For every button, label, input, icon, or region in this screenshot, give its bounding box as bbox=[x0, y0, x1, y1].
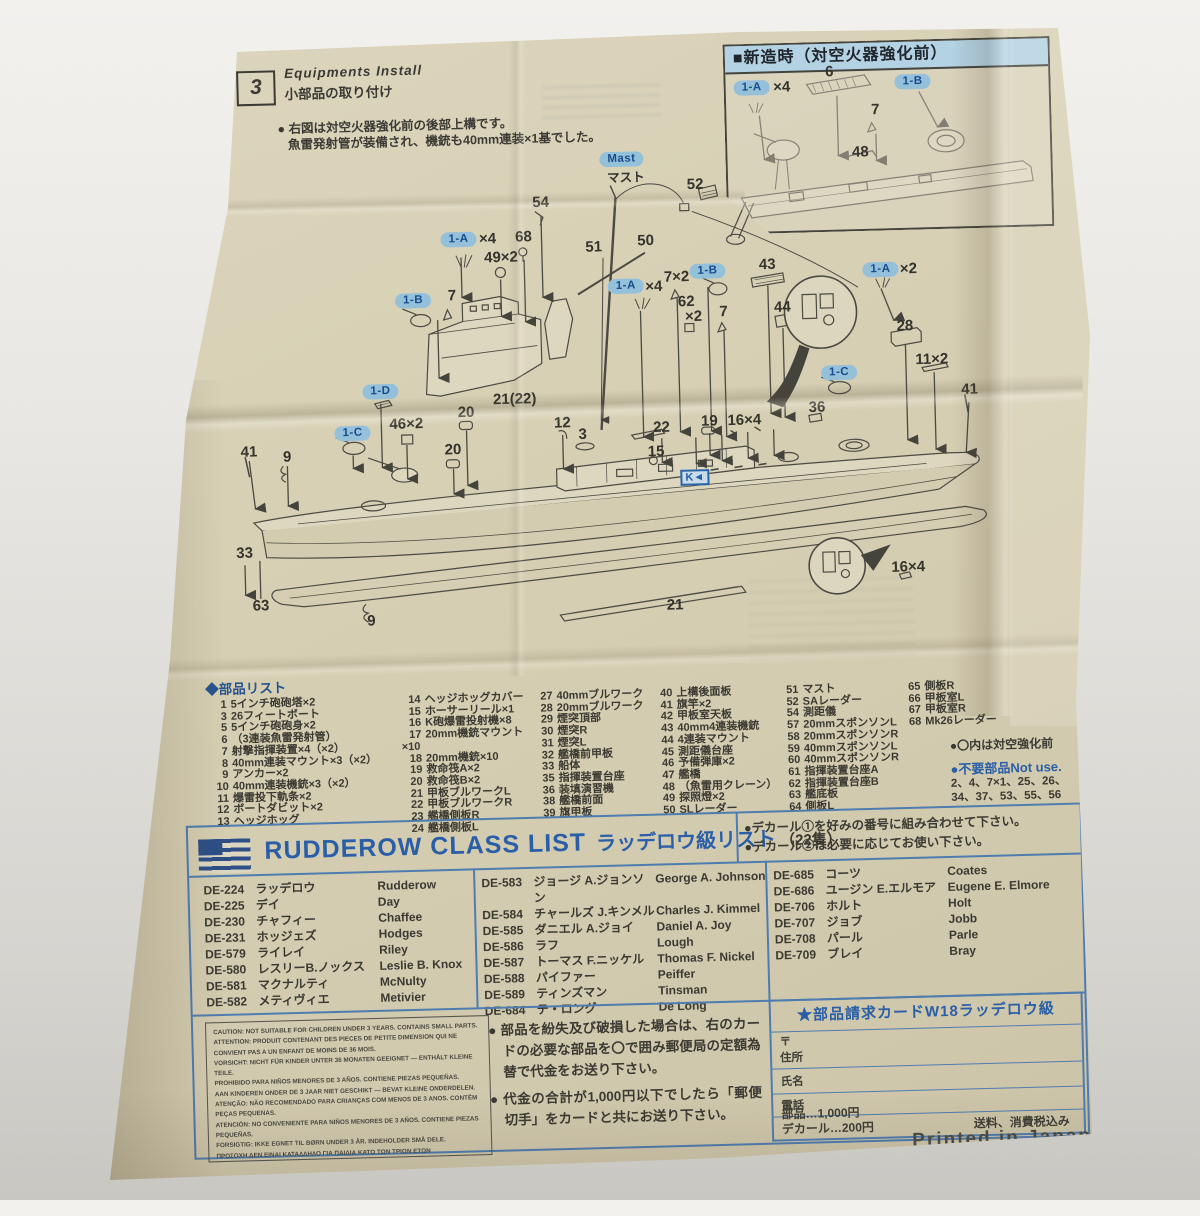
class-list-group: DE-685コーツCoatesDE-686ユージン E.エルモアEugene E… bbox=[773, 860, 1051, 963]
part-number-label: マスト bbox=[607, 166, 645, 186]
ship-name-en: Eugene E. Elmore bbox=[947, 876, 1049, 895]
part-number-label: 48 bbox=[852, 143, 869, 160]
hull-number: DE-586 bbox=[483, 938, 535, 955]
hull-number: DE-709 bbox=[775, 946, 827, 963]
ship-name-en: Metivier bbox=[380, 989, 426, 1006]
hull-number: DE-224 bbox=[203, 881, 255, 898]
parts-list-column: 14ヘッジホッグカバー15ホーサーリール×116K砲爆雷投射機×81720mm機… bbox=[400, 692, 538, 836]
part-number-label: 9 bbox=[367, 612, 376, 629]
ship-name-en: Hodges bbox=[378, 925, 422, 942]
part-name: 艦橋 bbox=[678, 768, 700, 781]
part-number-label: 12 bbox=[554, 414, 571, 431]
ship-name-en: Leslie B. Knox bbox=[379, 956, 462, 974]
part-number-label: 19 bbox=[701, 412, 718, 429]
part-name: 指揮装置台座B bbox=[805, 775, 879, 789]
hull-number: DE-686 bbox=[773, 882, 825, 899]
part-number-label: 54 bbox=[532, 194, 549, 211]
part-number-label: ×4 bbox=[645, 278, 663, 295]
part-number-label: 22 bbox=[653, 419, 670, 436]
class-list-section: RUDDEROW CLASS LISTラッデロウ級リスト（22隻） ●デカール①… bbox=[186, 802, 1090, 1159]
part-group-label: 1-A bbox=[440, 232, 476, 248]
part-number-label: 51 bbox=[585, 238, 602, 255]
part-number-label: 20 bbox=[444, 441, 461, 458]
ship-name-en: George A. Johnson bbox=[655, 868, 766, 887]
hull-number: DE-707 bbox=[774, 914, 826, 931]
us-flag-icon bbox=[198, 838, 251, 873]
step-title-ja: 小部品の取り付け bbox=[284, 80, 392, 103]
part-number-label: 16×4 bbox=[727, 411, 761, 429]
ship-name-en: Parle bbox=[949, 926, 979, 943]
sheet-content: 3 Equipments Install 小部品の取り付け ● 右図は対空火器強… bbox=[0, 0, 1200, 1216]
part-name: （魚雷用クレーン） bbox=[679, 778, 778, 793]
hull-number: DE-579 bbox=[205, 945, 257, 962]
printed-in-japan: Printed in Japan bbox=[912, 1125, 1092, 1152]
parts-list-column: 15インチ砲砲塔×2326フィートボート55インチ砲砲身×26（3連装魚雷発射管… bbox=[206, 695, 401, 829]
part-group-label: 1-B bbox=[894, 74, 930, 90]
part-number-label: 7 bbox=[719, 303, 728, 320]
ship-name-en: Tinsman bbox=[658, 981, 708, 998]
part-name: 船体 bbox=[558, 760, 580, 773]
part-name: 艦橋前甲板 bbox=[558, 747, 613, 760]
hull-number: DE-583 bbox=[481, 874, 533, 891]
hull-number: DE-588 bbox=[484, 970, 536, 987]
price-decal: デカール…200円 bbox=[782, 1120, 874, 1137]
part-number-label: 20 bbox=[457, 404, 474, 421]
part-group-label: Mast bbox=[599, 151, 644, 167]
ship-name-ja: ジョージ A.ジョンソン bbox=[533, 871, 656, 906]
hull-number: DE-225 bbox=[204, 897, 256, 914]
ship-name-en: Chaffee bbox=[378, 909, 422, 926]
class-list-group: DE-583ジョージ A.ジョンソンGeorge A. JohnsonDE-58… bbox=[481, 868, 769, 1019]
hull-number: DE-589 bbox=[484, 986, 536, 1003]
instruction-sheet-paper: 3 Equipments Install 小部品の取り付け ● 右図は対空火器強… bbox=[0, 0, 1200, 1200]
divider bbox=[473, 868, 478, 1007]
part-group-label: 1-B bbox=[395, 293, 431, 309]
part-number-label: 7 bbox=[448, 287, 457, 304]
part-number-label: 11×2 bbox=[915, 350, 948, 368]
part-number-label: 41 bbox=[961, 381, 978, 398]
part-number-label: 50 bbox=[637, 232, 654, 249]
parts-list-column: 2740mmブルワーク2820mmブルワーク29煙突頂部30煙突R31煙突L32… bbox=[532, 689, 655, 821]
part-number-label: 33 bbox=[236, 545, 253, 562]
part-number-label: 6 bbox=[825, 63, 834, 80]
hull-number: DE-230 bbox=[204, 913, 256, 930]
step-number-box: 3 bbox=[236, 70, 276, 106]
part-number-label: K◄ bbox=[680, 469, 709, 486]
parts-list-column: 40上構後面板41旗竿×242甲板室天板4340mm4連装機銃444連装マウント… bbox=[652, 685, 783, 817]
hull-number: DE-580 bbox=[205, 961, 257, 978]
hull-number: DE-231 bbox=[205, 929, 257, 946]
part-group-label: 1-B bbox=[689, 263, 725, 279]
decal-notes: ●デカール①を好みの番号に組み合わせて下さい。●デカール②は必要に応じてお使い下… bbox=[744, 811, 1075, 858]
hull-number: DE-584 bbox=[482, 906, 534, 923]
diagram-callouts: 1-A×461-B748Mastマスト5254681-A×449×251501-… bbox=[0, 0, 1184, 16]
ship-name-en: McNulty bbox=[380, 973, 427, 990]
part-number-label: 63 bbox=[252, 597, 269, 614]
ship-name-en: Charles J. Kimmel bbox=[656, 900, 760, 919]
part-name: 予備弾庫×2 bbox=[678, 756, 735, 769]
part-number-label: ×4 bbox=[773, 78, 791, 95]
part-group-label: 1-D bbox=[362, 384, 398, 400]
part-name: 艦橋前面 bbox=[559, 794, 603, 807]
hull-number: DE-706 bbox=[774, 898, 826, 915]
parts-list-column: 65側板R66甲板室L67甲板室R68Mk26レーダー bbox=[900, 679, 1041, 729]
part-number-label: ×2 bbox=[900, 260, 918, 277]
part-number-label: 44 bbox=[774, 298, 791, 315]
ship-name-en: Day bbox=[378, 893, 400, 910]
instruction-line: ● 部品を紛失及び破損した場合は、右のカードの必要な部品を〇で囲み郵便局の定額為… bbox=[488, 1013, 762, 1083]
parts-request-card: ★部品請求カードW18ラッデロウ級 〒 住所 氏名 電話 部品…1,000円 デ… bbox=[769, 992, 1087, 1142]
hull-number: DE-684 bbox=[485, 1002, 537, 1019]
part-number-label: 9 bbox=[283, 449, 292, 466]
ship-name-en: Bray bbox=[949, 942, 976, 959]
part-group-label: 1-A bbox=[608, 278, 644, 294]
part-group-label: 1-C bbox=[334, 425, 370, 441]
parts-list-column: 51マスト52SAレーダー54測距儀5720mmスポンソンL5820mmスポンソ… bbox=[778, 682, 903, 814]
ship-name-en: Peiffer bbox=[658, 966, 696, 983]
part-name: Mk26レーダー bbox=[925, 714, 997, 728]
part-number-label: ×4 bbox=[479, 230, 497, 247]
ship-name-en: Rudderow bbox=[377, 876, 436, 894]
ship-name-ja: メティヴィエ bbox=[258, 990, 380, 1009]
part-number-label: 21 bbox=[667, 596, 684, 613]
parts-list-item: 1720mm機銃マウント×10 bbox=[401, 727, 536, 754]
part-number-label: 7×2 bbox=[664, 268, 690, 286]
parts-list-notes: ●〇内は対空強化前 ●不要部品Not use. 2、4、7×1、25、26、 3… bbox=[950, 736, 1067, 805]
part-number-label: 21(22) bbox=[493, 390, 537, 408]
ship-name-en: Jobb bbox=[948, 910, 977, 927]
photo-of-instruction-sheet: { "sec3": { "number": "3", "title_en": "… bbox=[0, 0, 1200, 1200]
part-number-label: 16×4 bbox=[891, 558, 925, 576]
part-number-label: ×2 bbox=[685, 308, 703, 325]
price-lines: 部品…1,000円 デカール…200円 bbox=[781, 1105, 874, 1137]
ship-name-en: Holt bbox=[948, 894, 972, 911]
part-number-label: 15 bbox=[648, 443, 665, 460]
part-number-label: 68 bbox=[515, 228, 532, 245]
hull-number: DE-685 bbox=[773, 866, 825, 883]
part-number: 68 bbox=[901, 717, 921, 729]
ship-name-en: Daniel A. Joy bbox=[656, 917, 731, 935]
class-list-title-en: RUDDEROW CLASS LIST bbox=[264, 828, 586, 864]
part-number-label: 49×2 bbox=[484, 249, 518, 267]
part-group-label: 1-A bbox=[862, 262, 898, 278]
ship-name-en: Coates bbox=[947, 862, 987, 879]
part-number-label: 52 bbox=[687, 176, 704, 193]
inset-title: ■新造時（対空火器強化前） bbox=[725, 38, 1049, 74]
ship-name-en: Lough bbox=[657, 934, 694, 951]
ship-name-en: De Long bbox=[658, 997, 706, 1014]
ship-name-en: Thomas F. Nickel bbox=[657, 948, 755, 967]
as-built-inset-box: ■新造時（対空火器強化前） bbox=[723, 36, 1055, 234]
part-number-label: 43 bbox=[759, 256, 776, 273]
hull-number: DE-585 bbox=[482, 922, 534, 939]
part-number-label: 3 bbox=[578, 426, 587, 443]
part-number-label: 46×2 bbox=[389, 415, 423, 433]
part-number-label: 7 bbox=[871, 101, 880, 118]
hull-number: DE-708 bbox=[775, 930, 827, 947]
ship-name-ja: ブレイ bbox=[827, 943, 949, 962]
note-strengthening: ●〇内は対空強化前 bbox=[950, 736, 1066, 753]
part-group-label: 1-A bbox=[733, 80, 769, 96]
class-list-group: DE-224ラッデロウRudderowDE-225デイDayDE-230チャフィ… bbox=[203, 876, 463, 1011]
multilingual-caution-box: CAUTION: NOT SUITABLE FOR CHILDREN UNDER… bbox=[205, 1015, 493, 1162]
part-group-label: 1-C bbox=[821, 365, 857, 381]
ship-name-en: Riley bbox=[379, 941, 408, 958]
parts-request-instructions: ● 部品を紛失及び破損した場合は、右のカードの必要な部品を〇で囲み郵便局の定額為… bbox=[488, 1013, 763, 1137]
hull-number: DE-582 bbox=[206, 993, 258, 1010]
part-number-label: 41 bbox=[240, 443, 257, 460]
hull-number: DE-581 bbox=[206, 977, 258, 994]
hull-number: DE-587 bbox=[483, 954, 535, 971]
part-number-label: 28 bbox=[896, 317, 913, 334]
instruction-line: ● 代金の合計が1,000円以下でしたら「郵便切手」をカードと共にお送り下さい。 bbox=[490, 1082, 763, 1131]
part-number-label: 36 bbox=[808, 399, 825, 416]
parts-list-title: ◆部品リスト bbox=[205, 676, 286, 698]
ship-name-ja: テ・ロング bbox=[536, 999, 658, 1018]
